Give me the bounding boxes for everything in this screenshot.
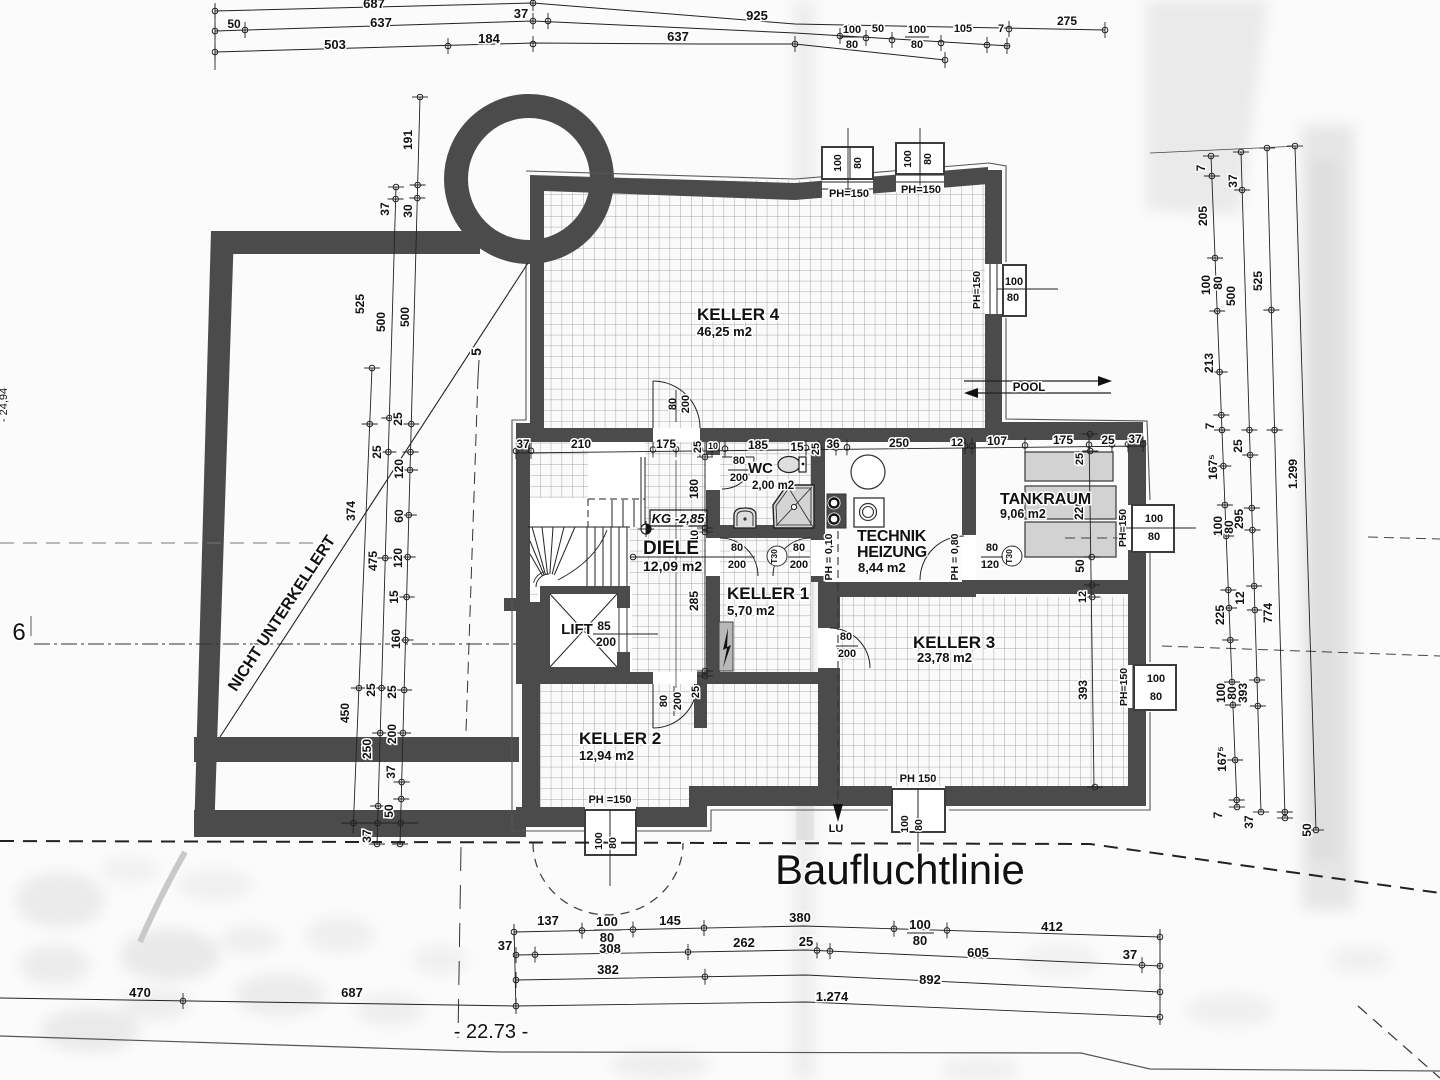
svg-text:120: 120 xyxy=(391,548,405,568)
svg-text:25: 25 xyxy=(391,412,405,426)
svg-text:250: 250 xyxy=(889,436,909,450)
svg-text:295: 295 xyxy=(1232,509,1246,529)
svg-text:200: 200 xyxy=(730,472,748,484)
svg-text:8,44 m2: 8,44 m2 xyxy=(858,560,906,575)
svg-text:1.299: 1.299 xyxy=(1286,459,1300,489)
svg-text:525: 525 xyxy=(1251,271,1265,291)
svg-text:470: 470 xyxy=(129,985,151,1000)
svg-text:50: 50 xyxy=(1073,559,1087,573)
svg-text:23,78 m2: 23,78 m2 xyxy=(917,650,972,665)
svg-text:PH=150: PH=150 xyxy=(1118,668,1130,706)
svg-text:107: 107 xyxy=(987,434,1007,448)
svg-text:80: 80 xyxy=(911,39,923,51)
svg-text:100: 100 xyxy=(908,24,926,36)
svg-text:637: 637 xyxy=(667,29,689,44)
svg-text:PH 150: PH 150 xyxy=(900,773,937,785)
svg-text:- 22.73 -: - 22.73 - xyxy=(454,1021,528,1043)
svg-text:KELLER 1: KELLER 1 xyxy=(727,584,809,603)
svg-text:37: 37 xyxy=(378,202,392,216)
svg-text:KG -2,85: KG -2,85 xyxy=(652,511,706,526)
svg-text:200: 200 xyxy=(680,395,692,413)
svg-text:37: 37 xyxy=(384,765,398,779)
svg-text:37: 37 xyxy=(360,829,374,843)
svg-text:KELLER 2: KELLER 2 xyxy=(579,729,661,748)
svg-text:37: 37 xyxy=(516,437,530,451)
svg-text:25: 25 xyxy=(364,683,378,697)
svg-text:80: 80 xyxy=(852,157,864,169)
svg-text:50: 50 xyxy=(872,23,884,35)
svg-text:80: 80 xyxy=(733,455,745,467)
svg-text:50: 50 xyxy=(1300,823,1314,837)
svg-text:PH =150: PH =150 xyxy=(588,794,631,806)
svg-text:374: 374 xyxy=(344,501,358,521)
svg-text:80: 80 xyxy=(658,695,670,707)
svg-text:160: 160 xyxy=(389,629,403,649)
svg-text:308: 308 xyxy=(599,941,621,956)
svg-text:25: 25 xyxy=(799,934,813,949)
svg-text:25: 25 xyxy=(692,441,704,453)
svg-text:120: 120 xyxy=(392,459,406,479)
svg-text:37: 37 xyxy=(498,938,512,953)
svg-text:80: 80 xyxy=(1150,691,1162,703)
svg-text:12: 12 xyxy=(1077,591,1089,603)
svg-text:687: 687 xyxy=(341,985,363,1000)
svg-text:80: 80 xyxy=(667,398,679,410)
svg-text:9,06 m2: 9,06 m2 xyxy=(1000,507,1046,521)
svg-text:185: 185 xyxy=(748,438,768,452)
svg-text:12,09 m2: 12,09 m2 xyxy=(643,558,702,574)
svg-text:774: 774 xyxy=(1261,603,1275,623)
svg-text:205: 205 xyxy=(1196,206,1210,226)
svg-text:120: 120 xyxy=(981,559,999,571)
svg-text:7: 7 xyxy=(998,23,1004,35)
svg-text:605: 605 xyxy=(967,945,989,960)
svg-text:80: 80 xyxy=(1007,292,1019,304)
svg-text:25: 25 xyxy=(1101,433,1115,447)
svg-text:7: 7 xyxy=(1203,422,1217,429)
svg-text:275: 275 xyxy=(1057,14,1077,28)
svg-text:85: 85 xyxy=(597,619,611,633)
svg-text:503: 503 xyxy=(324,37,346,52)
svg-text:T30: T30 xyxy=(1004,549,1014,564)
svg-text:450: 450 xyxy=(338,703,352,723)
svg-text:100: 100 xyxy=(899,815,911,833)
svg-text:100: 100 xyxy=(832,154,844,172)
svg-text:80: 80 xyxy=(1148,531,1160,543)
svg-text:5: 5 xyxy=(468,348,484,356)
svg-text:200: 200 xyxy=(728,559,746,571)
svg-text:180: 180 xyxy=(687,479,701,499)
svg-text:80: 80 xyxy=(793,542,805,554)
svg-text:25: 25 xyxy=(1074,453,1086,465)
svg-text:TANKRAUM: TANKRAUM xyxy=(1000,491,1091,508)
svg-text:80: 80 xyxy=(731,542,743,554)
svg-text:PH=150: PH=150 xyxy=(971,271,983,309)
svg-text:50: 50 xyxy=(227,17,241,31)
svg-text:167⁵: 167⁵ xyxy=(1215,746,1229,772)
svg-text:36: 36 xyxy=(826,437,840,451)
svg-text:37: 37 xyxy=(1226,174,1240,188)
svg-text:POOL: POOL xyxy=(1013,382,1046,394)
svg-text:100: 100 xyxy=(902,150,914,168)
svg-text:100: 100 xyxy=(1145,513,1163,525)
svg-text:37: 37 xyxy=(1123,947,1137,962)
svg-text:175: 175 xyxy=(1053,433,1073,447)
svg-text:892: 892 xyxy=(919,972,941,987)
svg-text:145: 145 xyxy=(659,913,681,928)
svg-text:7: 7 xyxy=(1194,164,1208,171)
svg-text:15: 15 xyxy=(387,590,401,604)
svg-text:80: 80 xyxy=(986,542,998,554)
svg-text:500: 500 xyxy=(398,307,412,327)
svg-text:250: 250 xyxy=(360,739,374,759)
svg-text:200: 200 xyxy=(596,635,616,649)
svg-text:137: 137 xyxy=(537,913,559,928)
svg-text:PH = 0,10: PH = 0,10 xyxy=(823,533,835,580)
svg-text:687: 687 xyxy=(363,0,385,11)
svg-text:25: 25 xyxy=(385,685,399,699)
svg-text:15: 15 xyxy=(790,440,804,454)
svg-text:12,94 m2: 12,94 m2 xyxy=(579,748,634,763)
svg-text:80: 80 xyxy=(607,837,619,849)
svg-text:50: 50 xyxy=(382,804,396,818)
svg-text:12: 12 xyxy=(951,437,963,449)
svg-text:KELLER 4: KELLER 4 xyxy=(697,305,780,324)
svg-text:500: 500 xyxy=(374,312,388,332)
svg-text:80: 80 xyxy=(1211,276,1225,290)
svg-text:25: 25 xyxy=(690,686,702,698)
svg-text:100: 100 xyxy=(593,832,605,850)
svg-text:637: 637 xyxy=(370,15,392,30)
svg-text:285: 285 xyxy=(687,591,701,611)
svg-text:80: 80 xyxy=(913,819,925,831)
svg-text:PH=150: PH=150 xyxy=(829,188,869,200)
svg-text:100: 100 xyxy=(596,914,618,929)
svg-text:80: 80 xyxy=(913,933,927,948)
svg-text:200: 200 xyxy=(838,648,856,660)
svg-text:100: 100 xyxy=(1005,276,1023,288)
svg-text:210: 210 xyxy=(571,437,591,451)
svg-text:PH=150: PH=150 xyxy=(1117,509,1129,547)
svg-text:80: 80 xyxy=(840,631,852,643)
svg-text:80: 80 xyxy=(922,153,934,165)
svg-text:37: 37 xyxy=(1128,432,1142,446)
svg-text:412: 412 xyxy=(1041,919,1063,934)
svg-text:12: 12 xyxy=(1233,591,1247,605)
svg-text:25: 25 xyxy=(810,443,822,455)
svg-text:80: 80 xyxy=(846,39,858,51)
svg-text:184: 184 xyxy=(478,31,500,46)
svg-text:TECHNIK: TECHNIK xyxy=(857,528,927,545)
svg-text:213: 213 xyxy=(1202,353,1216,373)
svg-text:10: 10 xyxy=(708,441,718,451)
svg-text:5,70 m2: 5,70 m2 xyxy=(727,603,775,618)
svg-text:Baufluchtlinie: Baufluchtlinie xyxy=(775,846,1025,893)
svg-text:200: 200 xyxy=(672,692,684,710)
svg-text:200: 200 xyxy=(790,559,808,571)
svg-text:175: 175 xyxy=(656,437,676,451)
svg-text:925: 925 xyxy=(746,8,768,23)
svg-text:525: 525 xyxy=(353,294,367,314)
svg-text:PH=150: PH=150 xyxy=(901,184,941,196)
svg-text:30: 30 xyxy=(401,204,415,218)
svg-text:25: 25 xyxy=(370,445,384,459)
svg-text:100: 100 xyxy=(909,917,931,932)
svg-text:46,25 m2: 46,25 m2 xyxy=(697,324,752,339)
svg-text:LIFT: LIFT xyxy=(561,621,593,638)
svg-text:100: 100 xyxy=(843,24,861,36)
svg-text:100: 100 xyxy=(1147,673,1165,685)
svg-text:37: 37 xyxy=(1242,815,1256,829)
svg-text:7: 7 xyxy=(1211,811,1225,818)
svg-text:2,00 m2: 2,00 m2 xyxy=(752,480,794,492)
svg-text:262: 262 xyxy=(733,935,755,950)
svg-text:475: 475 xyxy=(366,551,380,571)
svg-text:T30: T30 xyxy=(769,549,779,564)
svg-text:393: 393 xyxy=(1076,680,1090,700)
svg-text:393: 393 xyxy=(1236,683,1250,703)
svg-text:37: 37 xyxy=(514,6,528,21)
svg-text:25: 25 xyxy=(1231,439,1245,453)
svg-text:105: 105 xyxy=(954,23,972,35)
svg-text:LU: LU xyxy=(829,823,844,835)
svg-text:1.274: 1.274 xyxy=(816,989,849,1004)
svg-text:380: 380 xyxy=(789,910,811,925)
svg-text:6: 6 xyxy=(12,619,25,646)
svg-text:DIELE: DIELE xyxy=(643,538,699,559)
svg-text:200: 200 xyxy=(385,724,399,744)
svg-text:500: 500 xyxy=(1224,286,1238,306)
svg-text:- 24,94: - 24,94 xyxy=(0,388,10,422)
svg-text:WC: WC xyxy=(748,460,773,477)
svg-text:HEIZUNG: HEIZUNG xyxy=(857,544,927,561)
svg-text:167⁵: 167⁵ xyxy=(1206,454,1220,480)
svg-text:60: 60 xyxy=(392,509,406,523)
svg-text:PH = 0,80: PH = 0,80 xyxy=(949,533,961,580)
svg-text:225: 225 xyxy=(1213,605,1227,625)
svg-text:382: 382 xyxy=(597,962,619,977)
svg-text:191: 191 xyxy=(401,130,415,150)
